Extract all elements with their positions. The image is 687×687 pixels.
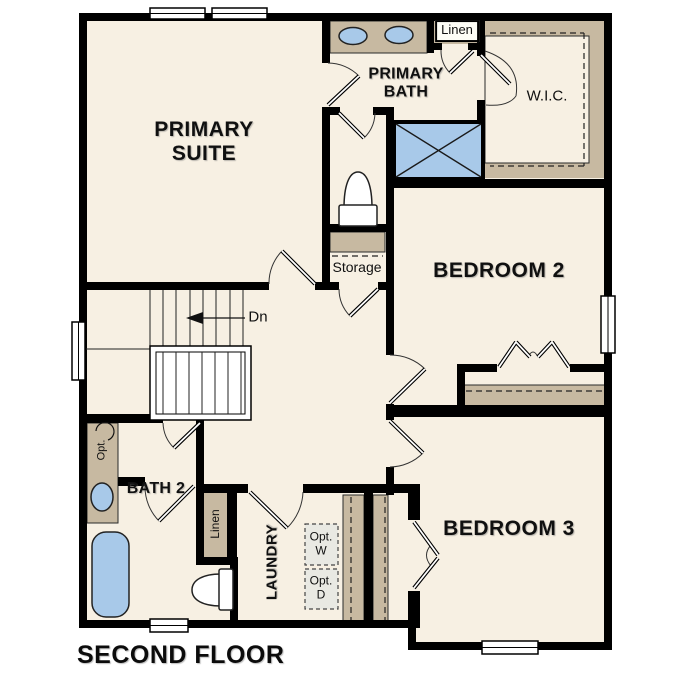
- room-label-wic: W.I.C.: [527, 87, 568, 104]
- optional-dryer-label: Opt. D: [304, 574, 338, 603]
- room-label-bedroom-3: BEDROOM 3: [399, 517, 619, 541]
- floor-plan-drawing: [0, 0, 687, 687]
- optional-vanity-label: Opt.: [95, 440, 108, 461]
- shower-icon: [394, 122, 483, 179]
- window: [72, 322, 85, 380]
- wic-shelf-right: [589, 21, 605, 178]
- room-label-bath-2: BATH 2: [106, 480, 206, 498]
- room-label-storage: Storage: [332, 259, 381, 275]
- closet-label-linen-lower: Linen: [208, 509, 222, 538]
- laundry-shelf: [343, 495, 364, 622]
- room-label-laundry: LAUNDRY: [263, 524, 280, 600]
- window: [150, 619, 188, 632]
- window: [212, 8, 267, 19]
- window: [482, 641, 538, 654]
- floor-plan: PRIMARY SUITE PRIMARY BATH W.I.C. Linen …: [0, 0, 687, 687]
- room-label-primary-suite: PRIMARY SUITE: [124, 118, 284, 166]
- page-title: SECOND FLOOR: [77, 641, 284, 670]
- closet-label-linen-upper: Linen: [435, 20, 479, 42]
- room-label-bedroom-2: BEDROOM 2: [389, 259, 609, 283]
- bedroom3-closet-shelf: [373, 495, 388, 622]
- wic-shelf-top: [485, 21, 605, 36]
- sink-icon: [339, 28, 367, 45]
- bathtub-icon: [92, 532, 129, 617]
- window: [601, 296, 615, 353]
- room-label-primary-bath: PRIMARY BATH: [346, 66, 466, 103]
- sink-icon: [385, 27, 413, 44]
- wic-shelf-bottom: [485, 163, 589, 178]
- stairs-down-label: Dn: [248, 308, 267, 325]
- stair-railing-outer: [150, 346, 251, 420]
- window: [150, 8, 205, 19]
- storage-shelf: [330, 232, 385, 252]
- optional-washer-label: Opt. W: [304, 530, 338, 559]
